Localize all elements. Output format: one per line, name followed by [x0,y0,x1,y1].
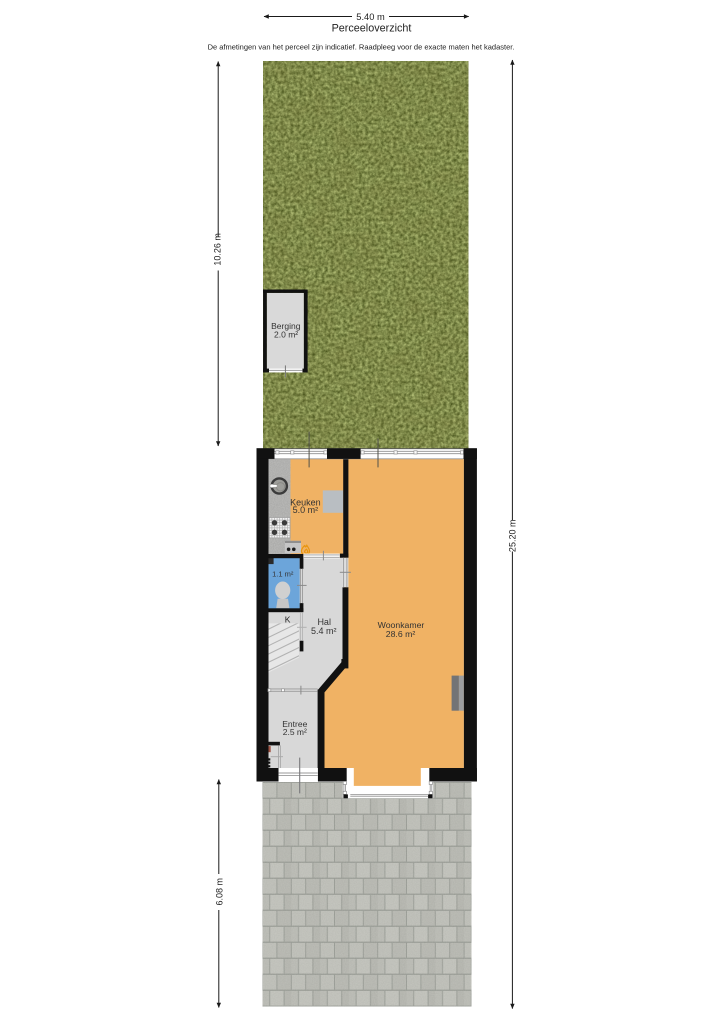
svg-text:6.08 m: 6.08 m [214,878,224,906]
svg-text:K: K [285,614,291,624]
svg-text:2.5 m²: 2.5 m² [283,727,307,737]
svg-text:5.0 m²: 5.0 m² [293,505,319,515]
svg-text:5.40 m: 5.40 m [356,12,385,22]
svg-text:28.6 m²: 28.6 m² [386,629,416,639]
svg-text:1.1 m²: 1.1 m² [272,570,294,579]
svg-text:De afmetingen van het perceel: De afmetingen van het perceel zijn indic… [208,42,515,51]
svg-text:2.0 m²: 2.0 m² [274,330,298,340]
svg-text:5.4 m²: 5.4 m² [311,626,337,636]
svg-text:10.26 m: 10.26 m [212,233,222,266]
svg-text:Perceeloverzicht: Perceeloverzicht [332,23,412,35]
svg-text:25.20 m: 25.20 m [507,520,517,553]
